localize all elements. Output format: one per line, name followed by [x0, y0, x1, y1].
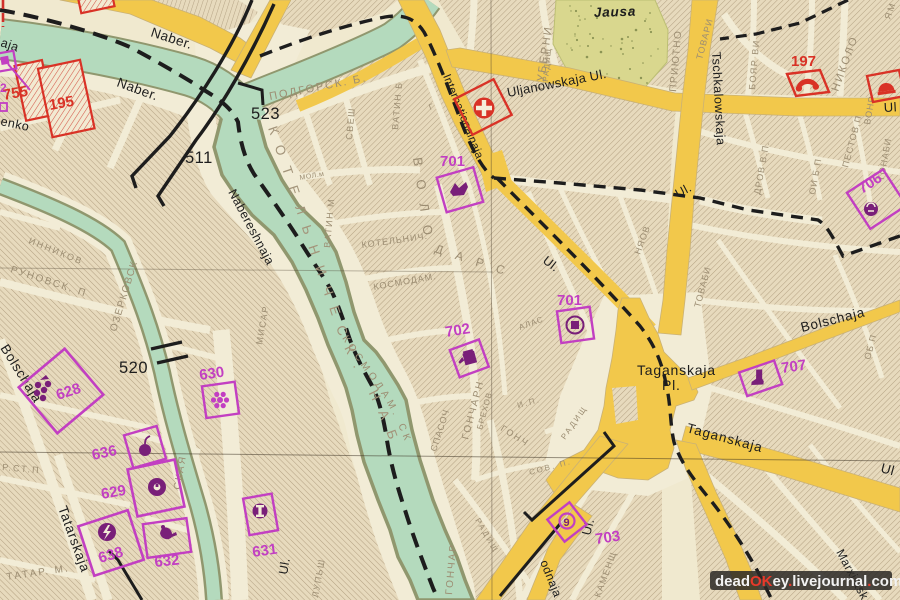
svg-text:deadOKey.livejournal.com: deadOKey.livejournal.com — [715, 573, 900, 590]
svg-text:Ul.: Ul. — [276, 557, 293, 576]
svg-text:Taganskaja: Taganskaja — [637, 362, 716, 378]
svg-text:701: 701 — [440, 153, 465, 170]
svg-text:511: 511 — [185, 149, 213, 167]
svg-text:631: 631 — [251, 541, 278, 561]
svg-text:9: 9 — [564, 517, 570, 529]
svg-text:Ul: Ul — [883, 99, 897, 115]
svg-text:703: 703 — [594, 528, 621, 548]
svg-text:632: 632 — [154, 551, 181, 571]
svg-text:523: 523 — [251, 105, 280, 123]
svg-text:197: 197 — [791, 53, 816, 70]
svg-text:Pl.: Pl. — [662, 377, 681, 393]
svg-text:701: 701 — [557, 292, 582, 309]
svg-text:630: 630 — [198, 364, 225, 384]
svg-text:Jausa: Jausa — [594, 4, 637, 20]
svg-text:520: 520 — [119, 359, 148, 377]
svg-text:707: 707 — [780, 357, 807, 377]
svg-text:2: 2 — [0, 81, 7, 95]
